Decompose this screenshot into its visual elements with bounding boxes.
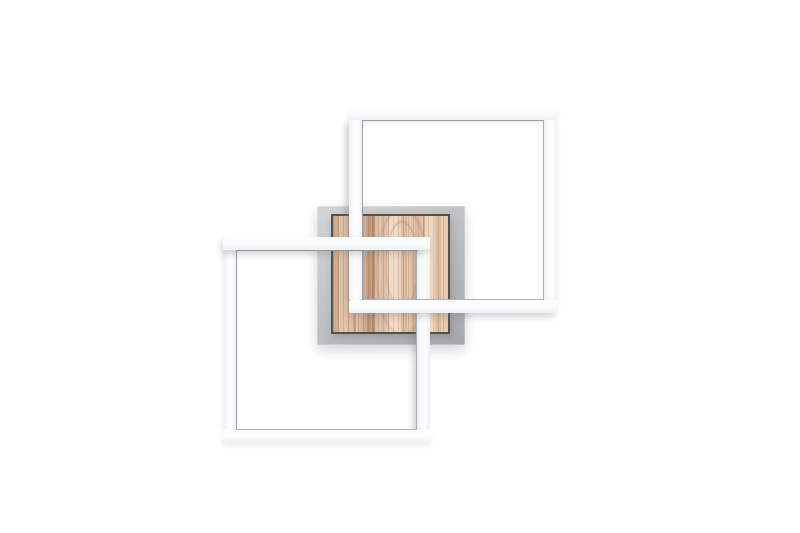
wood-grain-streak bbox=[372, 216, 375, 332]
upper-frame-top-bar bbox=[349, 107, 557, 120]
lamp-product-photo bbox=[0, 0, 800, 533]
upper-frame-right-bar bbox=[544, 120, 557, 300]
lower-frame-left-bar bbox=[223, 250, 236, 430]
lower-frame-right-bar bbox=[417, 250, 430, 430]
lower-frame-bottom-bar bbox=[223, 430, 430, 443]
upper-frame-left-bar bbox=[349, 120, 362, 300]
lower-frame-top-bar bbox=[223, 237, 430, 250]
upper-frame-bottom-bar bbox=[349, 300, 557, 313]
